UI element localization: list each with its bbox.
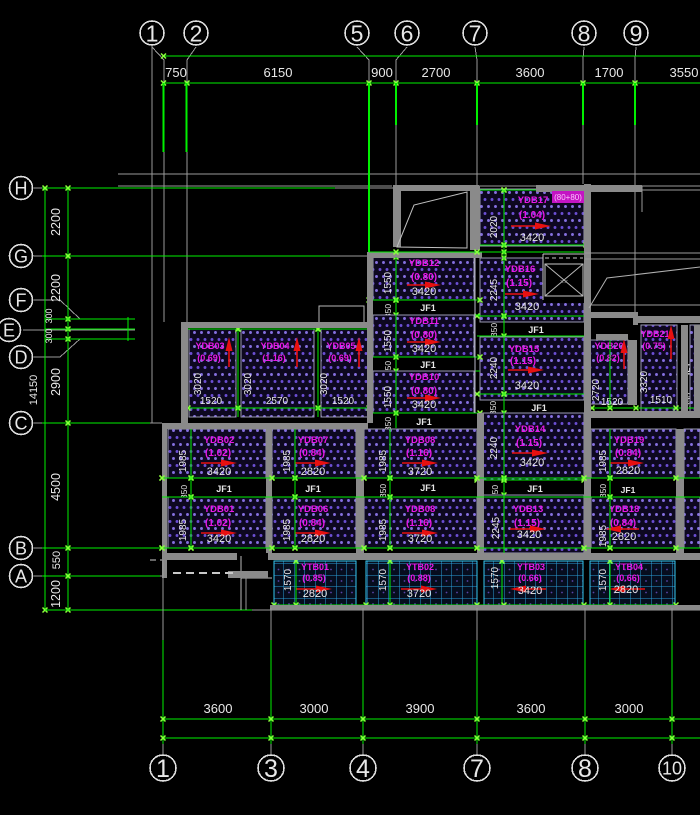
svg-text:YDB15: YDB15 — [509, 344, 540, 355]
svg-text:3900: 3900 — [406, 701, 435, 716]
svg-text:G: G — [14, 246, 28, 266]
svg-text:5: 5 — [351, 20, 364, 46]
svg-text:3: 3 — [264, 755, 278, 783]
svg-text:(0.84): (0.84) — [299, 518, 325, 529]
svg-text:YDB20: YDB20 — [594, 341, 623, 351]
svg-text:1550: 1550 — [383, 329, 394, 352]
svg-text:(80+80): (80+80) — [554, 193, 582, 202]
svg-text:YTB03: YTB03 — [517, 562, 545, 572]
svg-text:8: 8 — [578, 755, 592, 783]
svg-text:3420: 3420 — [207, 466, 231, 478]
svg-text:YDB07: YDB07 — [298, 435, 329, 446]
svg-text:××: ×× — [560, 279, 568, 286]
svg-text:1570: 1570 — [598, 568, 609, 591]
svg-text:(1.02): (1.02) — [205, 448, 231, 459]
svg-text:3600: 3600 — [204, 701, 233, 716]
svg-text:14150: 14150 — [28, 375, 40, 406]
svg-text:2900: 2900 — [49, 368, 63, 396]
svg-text:(0.88): (0.88) — [407, 573, 431, 583]
svg-text:6150: 6150 — [264, 65, 293, 80]
svg-text:300: 300 — [44, 328, 54, 343]
svg-text:(0.69): (0.69) — [328, 353, 352, 363]
svg-text:350: 350 — [489, 323, 499, 337]
svg-text:2820: 2820 — [616, 465, 640, 477]
svg-text:2020: 2020 — [489, 215, 500, 238]
svg-text:1200: 1200 — [49, 580, 63, 608]
svg-text:(0.80): (0.80) — [411, 386, 437, 397]
svg-text:900: 900 — [371, 65, 393, 80]
svg-text:1520: 1520 — [200, 396, 223, 407]
svg-text:E: E — [3, 320, 15, 340]
svg-text:YDB04: YDB04 — [260, 341, 289, 351]
svg-text:JF1: JF1 — [420, 360, 436, 370]
svg-text:2820: 2820 — [614, 584, 638, 596]
svg-text:3720: 3720 — [408, 466, 432, 478]
svg-text:YDB08: YDB08 — [405, 435, 436, 446]
svg-text:8: 8 — [578, 20, 591, 46]
svg-text:JF1: JF1 — [216, 484, 232, 494]
svg-text:B: B — [15, 538, 27, 558]
svg-text:2570: 2570 — [266, 396, 289, 407]
svg-text:1570: 1570 — [490, 566, 501, 589]
svg-text:2240: 2240 — [489, 356, 500, 379]
svg-text:1985: 1985 — [378, 518, 389, 541]
svg-text:1985: 1985 — [282, 518, 293, 541]
svg-text:9: 9 — [630, 20, 643, 46]
svg-text:H: H — [15, 178, 28, 198]
svg-text:3600: 3600 — [517, 701, 546, 716]
svg-text:YDB17: YDB17 — [518, 195, 549, 206]
svg-text:3420: 3420 — [412, 343, 436, 355]
svg-text:750: 750 — [165, 65, 187, 80]
svg-text:F: F — [16, 290, 27, 310]
svg-text:1: 1 — [146, 20, 159, 46]
svg-text:3420: 3420 — [412, 399, 436, 411]
svg-text:2200: 2200 — [49, 274, 63, 302]
svg-text:3420: 3420 — [412, 286, 436, 298]
svg-text:(1.15): (1.15) — [516, 438, 542, 449]
svg-text:(1.04): (1.04) — [519, 210, 545, 221]
svg-text:(0.69): (0.69) — [197, 353, 221, 363]
svg-text:1510: 1510 — [650, 395, 673, 406]
svg-text:2820: 2820 — [612, 531, 636, 543]
svg-text:3720: 3720 — [407, 588, 431, 600]
svg-text:1985: 1985 — [282, 449, 293, 472]
svg-text:JF1: JF1 — [305, 484, 321, 494]
svg-text:3020: 3020 — [193, 372, 204, 395]
svg-text:1700: 1700 — [595, 65, 624, 80]
svg-text:C: C — [15, 413, 28, 433]
svg-text:7: 7 — [470, 755, 484, 783]
svg-text:2245: 2245 — [491, 516, 502, 539]
svg-text:YDB14: YDB14 — [515, 424, 546, 435]
svg-text:(0.80): (0.80) — [411, 272, 437, 283]
svg-text:JF1: JF1 — [531, 403, 547, 413]
svg-text:(0.84): (0.84) — [299, 448, 325, 459]
svg-text:(1.16): (1.16) — [262, 353, 286, 363]
svg-text:(0.85): (0.85) — [302, 573, 326, 583]
svg-text:3420: 3420 — [515, 301, 539, 313]
svg-text:2820: 2820 — [301, 533, 325, 545]
svg-text:YDB03: YDB03 — [195, 341, 224, 351]
svg-text:3420: 3420 — [520, 457, 544, 469]
svg-text:3320: 3320 — [639, 370, 650, 393]
svg-text:3000: 3000 — [300, 701, 329, 716]
svg-text:2245: 2245 — [489, 278, 500, 301]
svg-text:1985: 1985 — [598, 524, 609, 547]
svg-text:3420: 3420 — [207, 533, 231, 545]
svg-text:3420: 3420 — [515, 380, 539, 392]
svg-text:1985: 1985 — [598, 449, 609, 472]
svg-text:JF1: JF1 — [621, 485, 636, 495]
svg-text:D: D — [15, 347, 28, 367]
svg-text:(1.16): (1.16) — [406, 448, 432, 459]
svg-text:YDB06: YDB06 — [298, 504, 329, 515]
svg-text:1985: 1985 — [178, 518, 189, 541]
svg-text:(1.15): (1.15) — [510, 356, 536, 367]
svg-text:YDB21: YDB21 — [640, 329, 669, 339]
svg-text:JF1: JF1 — [527, 484, 543, 494]
svg-text:(0.66): (0.66) — [616, 573, 640, 583]
svg-text:YDB11: YDB11 — [409, 316, 440, 327]
svg-text:2200: 2200 — [49, 208, 63, 236]
svg-text:1550: 1550 — [383, 271, 394, 294]
svg-text:6: 6 — [401, 20, 414, 46]
svg-text:4: 4 — [356, 755, 370, 783]
svg-text:(1.16): (1.16) — [406, 518, 432, 529]
svg-text:1985: 1985 — [178, 449, 189, 472]
svg-text:2820: 2820 — [303, 588, 327, 600]
svg-text:10: 10 — [662, 758, 682, 778]
svg-text:3000: 3000 — [615, 701, 644, 716]
svg-text:2700: 2700 — [422, 65, 451, 80]
svg-text:1520: 1520 — [332, 396, 355, 407]
svg-text:3420: 3420 — [520, 232, 544, 244]
svg-text:YDB10: YDB10 — [409, 372, 440, 383]
svg-text:1: 1 — [156, 755, 170, 783]
svg-text:3550: 3550 — [670, 65, 699, 80]
svg-text:(0.80): (0.80) — [411, 330, 437, 341]
svg-text:3600: 3600 — [516, 65, 545, 80]
svg-text:(0.84): (0.84) — [615, 448, 641, 459]
svg-text:1570: 1570 — [283, 568, 294, 591]
svg-text:YDB08: YDB08 — [405, 504, 436, 515]
svg-text:3020: 3020 — [243, 372, 254, 395]
svg-text:(0.66): (0.66) — [518, 573, 542, 583]
svg-text:JF1: JF1 — [420, 483, 436, 493]
svg-text:(0.82): (0.82) — [596, 353, 620, 363]
svg-text:2820: 2820 — [301, 466, 325, 478]
svg-text:JF1: JF1 — [420, 303, 436, 313]
svg-text:A: A — [15, 566, 27, 586]
svg-text:(1.02): (1.02) — [205, 518, 231, 529]
svg-text:7: 7 — [469, 20, 482, 46]
svg-text:YDB01: YDB01 — [204, 504, 235, 515]
svg-text:4500: 4500 — [49, 473, 63, 501]
svg-text:1985: 1985 — [378, 449, 389, 472]
svg-text:2240: 2240 — [489, 436, 500, 459]
svg-text:YDB18: YDB18 — [609, 504, 640, 515]
svg-text:YDB02: YDB02 — [204, 435, 235, 446]
svg-text:550: 550 — [51, 551, 63, 569]
svg-text:1550: 1550 — [383, 385, 394, 408]
svg-text:YDB13: YDB13 — [513, 504, 544, 515]
svg-text:(0.75): (0.75) — [642, 341, 666, 351]
svg-text:3020: 3020 — [319, 372, 330, 395]
svg-text:(1.15): (1.15) — [506, 278, 532, 289]
svg-text:YDB12: YDB12 — [409, 258, 440, 269]
svg-text:YTB01: YTB01 — [301, 562, 329, 572]
svg-text:YDB16: YDB16 — [505, 264, 536, 275]
svg-text:YTB02: YTB02 — [406, 562, 434, 572]
svg-text:JF1: JF1 — [416, 417, 432, 427]
svg-text:350: 350 — [378, 484, 388, 498]
svg-text:1570: 1570 — [378, 568, 389, 591]
svg-text:YTB04: YTB04 — [615, 562, 643, 572]
svg-text:3720: 3720 — [408, 533, 432, 545]
svg-text:350: 350 — [598, 484, 608, 498]
svg-text:300: 300 — [44, 308, 54, 323]
svg-text:YDB19: YDB19 — [614, 435, 645, 446]
svg-text:JF1: JF1 — [528, 325, 544, 335]
svg-text:2: 2 — [190, 20, 203, 46]
svg-text:YDB05: YDB05 — [326, 341, 355, 351]
svg-text:3420: 3420 — [518, 585, 542, 597]
svg-text:3420: 3420 — [517, 529, 541, 541]
